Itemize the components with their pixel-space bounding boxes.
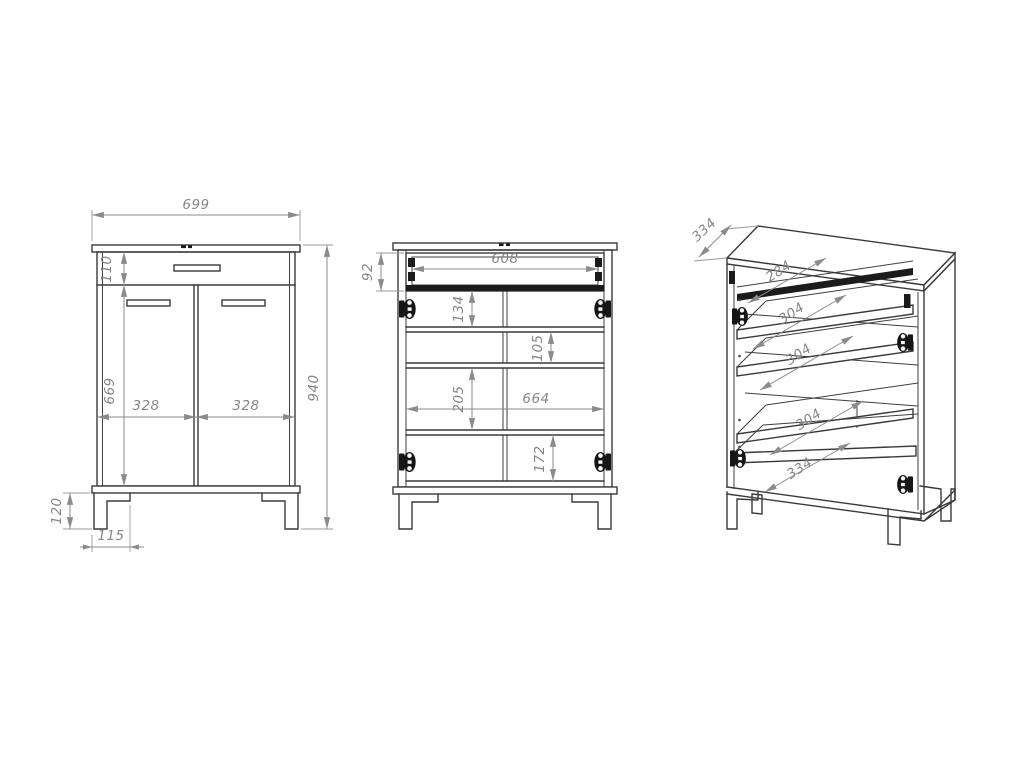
drawer-bottom-rail (406, 285, 604, 291)
left-leg (399, 494, 438, 529)
right-door-handle (222, 300, 265, 306)
drawer-slide-clip (595, 272, 602, 281)
bottom-rail (92, 486, 300, 493)
front-view: 699 110 669 328 328 940 120 115 (49, 197, 333, 552)
drawer-slide-clip (595, 258, 602, 267)
hinge-icon (594, 452, 611, 472)
top-panel (393, 243, 617, 250)
right-leg (262, 493, 298, 529)
dim-label-drawer-inner-width: 608 (491, 251, 518, 267)
dim-label-leg-offset: 115 (97, 528, 124, 544)
hinge-icon (730, 449, 746, 468)
hinge-icon (732, 307, 748, 326)
perspective-cabinet (727, 226, 955, 545)
center-divider (503, 291, 507, 481)
hinge-icon (399, 452, 416, 472)
drawer-handle (174, 265, 220, 271)
drawer-slide-clip (904, 294, 911, 308)
front-rail-bottom (727, 494, 924, 521)
dim-label-drawer-height: 110 (99, 255, 115, 282)
legs (727, 486, 955, 545)
shelf-3 (737, 409, 913, 443)
right-side-panel (924, 259, 955, 514)
bottom-rail (393, 487, 617, 494)
dim-label-width: 699 (182, 197, 209, 213)
dim-label-total-height: 940 (306, 374, 322, 401)
shelf-2 (737, 342, 913, 376)
shelf-1 (737, 305, 913, 339)
bottom-panel (734, 446, 916, 463)
drawer-slide-clip (408, 258, 415, 267)
dim-label-section-4: 172 (532, 445, 548, 472)
drawer-slide-clip (729, 271, 735, 284)
drawer-slide-clip (408, 272, 415, 281)
top-panel (92, 245, 300, 252)
furniture-drawing: 699 110 669 328 328 940 120 115 (0, 0, 1013, 759)
right-leg (572, 494, 611, 529)
left-door-handle (127, 300, 170, 306)
hinge-icon (897, 475, 913, 494)
top-fitting-mark (181, 246, 186, 249)
cabinet-body (97, 252, 295, 486)
hinge-icon (897, 333, 913, 352)
top-fitting-mark (188, 246, 192, 249)
dim-label-right-door-width: 328 (232, 398, 259, 414)
hinge-icon (594, 299, 611, 319)
top-fitting-mark (499, 244, 504, 247)
dim-label-left-door-width: 328 (132, 398, 159, 414)
dim-label-drawer-box-height: 92 (360, 263, 376, 281)
perspective-view: 334 284 304 304 304 334 (689, 215, 955, 545)
dim-label-section-2: 105 (530, 334, 546, 361)
front-right-leg (888, 509, 921, 545)
dim-label-section-1: 134 (451, 295, 467, 322)
dim-label-interior-width: 664 (522, 391, 549, 407)
inside-view: 92 608 134 105 205 664 172 (360, 243, 617, 529)
front-cabinet-outline (92, 245, 300, 529)
technical-drawing-canvas: 699 110 669 328 328 940 120 115 (0, 0, 1013, 759)
inside-cabinet-outline (393, 243, 617, 529)
dim-label-leg-height: 120 (49, 497, 65, 524)
hinge-icon (399, 299, 416, 319)
top-fitting-mark (506, 244, 510, 247)
dim-label-door-height: 669 (102, 377, 118, 404)
left-leg (94, 493, 130, 529)
